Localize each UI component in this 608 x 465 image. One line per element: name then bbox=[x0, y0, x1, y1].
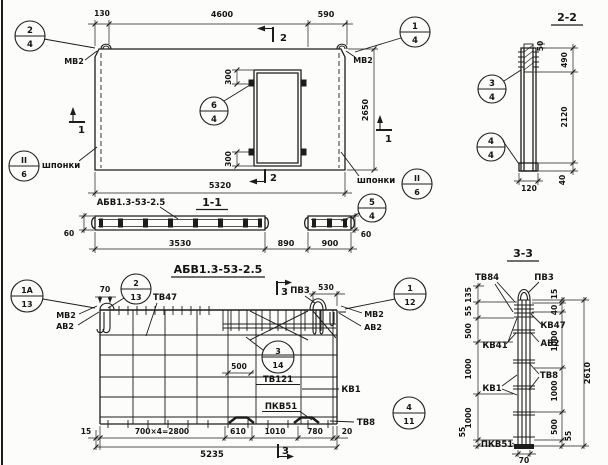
dim-70: 70 bbox=[100, 285, 110, 294]
section-marker-3-bottom: 3 bbox=[278, 444, 294, 459]
label-av2-right: АВ2 bbox=[364, 323, 382, 332]
section-marker-2-top: 2 bbox=[257, 26, 287, 44]
dim-60-left: 60 bbox=[64, 229, 74, 238]
section-1-1: 1-1 АБВ1.3-53-2.5 60 60 3530 890 900 bbox=[64, 194, 386, 253]
top-dim-lines bbox=[88, 20, 353, 47]
panel-mark-leader bbox=[160, 207, 178, 219]
callout-4-4: 4 4 bbox=[477, 133, 519, 164]
section-marker-1-left: 1 bbox=[69, 107, 85, 136]
dim-300-bottom: 300 bbox=[224, 151, 233, 167]
label-tv121: ТВ121 bbox=[263, 375, 293, 385]
right-label-leaders bbox=[338, 306, 362, 326]
callout-5-4: 5 4 bbox=[341, 194, 386, 222]
dim-70: 70 bbox=[519, 456, 529, 465]
section-3-3: 3-3 ТВ84 ПВ3 КВ47 АВ2 КВ41 КВ1 ТВ8 ПКВ51… bbox=[458, 247, 592, 465]
keys-callout-right: II 6 шпонки bbox=[341, 152, 432, 199]
dim-right-55: 55 bbox=[564, 431, 573, 441]
callout-sheet: 11 bbox=[403, 417, 415, 426]
pv3-loop bbox=[518, 290, 530, 301]
dim-70-arrow bbox=[98, 298, 102, 304]
dim-right-15: 15 bbox=[550, 289, 559, 299]
callout-2-4: 2 4 bbox=[15, 21, 95, 51]
callout-number: 3 bbox=[275, 347, 281, 356]
dim-590: 590 bbox=[318, 10, 335, 19]
callout-sheet: 4 bbox=[489, 93, 495, 103]
callout-number: 2 bbox=[133, 279, 139, 288]
dim-700x4: 700×4=2800 bbox=[135, 427, 189, 436]
bottom-plate bbox=[519, 163, 538, 171]
marker-label: 1 bbox=[385, 134, 392, 145]
label-pv3: ПВ3 bbox=[290, 286, 310, 296]
panel-plan-view: 130 4600 590 2650 5320 300 300 2 4 1 4 bbox=[9, 9, 432, 199]
dim-120: 120 bbox=[521, 184, 537, 193]
lifting-loop-right bbox=[337, 44, 347, 49]
callout-sheet: 4 bbox=[27, 40, 33, 50]
callout-number: 4 bbox=[488, 137, 494, 147]
label-av2-left: АВ2 bbox=[56, 322, 74, 331]
callout-sheet: 13 bbox=[21, 300, 32, 309]
section-marker-1-right: 1 bbox=[376, 115, 392, 145]
callout-number: 3 bbox=[489, 79, 495, 89]
opening-outline bbox=[254, 70, 301, 166]
callout-sheet: 4 bbox=[211, 115, 217, 125]
dim-70-arrow bbox=[108, 298, 112, 304]
scan-edge bbox=[1, 0, 3, 465]
callout-sheet: 6 bbox=[21, 170, 27, 179]
callout-sheet: 12 bbox=[404, 298, 415, 307]
callout-number: 1 bbox=[412, 22, 418, 32]
label-pkv51: ПКВ51 bbox=[481, 440, 513, 450]
mv2-right-leader bbox=[346, 51, 355, 57]
dim-left-500: 500 bbox=[464, 323, 473, 339]
dim-15: 15 bbox=[81, 427, 91, 436]
callout-number: 1 bbox=[407, 284, 413, 293]
panel-mark-label: АБВ1.3-53-2.5 bbox=[97, 198, 166, 208]
callout-sheet: 13 bbox=[130, 293, 141, 302]
callout-sheet: 4 bbox=[412, 36, 418, 46]
dim-1010: 1010 bbox=[265, 427, 286, 436]
label-mv2-right: МВ2 bbox=[364, 310, 384, 319]
dim-60-right: 60 bbox=[361, 230, 371, 239]
opening-fixing-plate bbox=[301, 149, 307, 156]
dim-900: 900 bbox=[322, 239, 339, 248]
dim-left-55-bottom: 55 bbox=[458, 427, 467, 437]
dim-530: 530 bbox=[318, 283, 334, 292]
tv47-leader bbox=[146, 303, 157, 336]
callout-4-11: 4 11 bbox=[393, 397, 425, 429]
dim-right-40: 40 bbox=[550, 305, 559, 315]
bottom-chain-ticks bbox=[94, 436, 340, 450]
callout-number: 5 bbox=[369, 198, 375, 208]
label-kv1: КВ1 bbox=[482, 384, 501, 394]
dim-780: 780 bbox=[307, 427, 323, 436]
callout-1a-13: 1А 13 bbox=[11, 280, 95, 312]
keys-callout-left: II 6 шпонки bbox=[9, 147, 97, 181]
left-label-leaders bbox=[78, 306, 99, 325]
dim-890: 890 bbox=[278, 239, 295, 248]
dim-left-1000-a: 1000 bbox=[464, 359, 473, 380]
dim-20: 20 bbox=[342, 427, 352, 436]
dim-2120: 2120 bbox=[560, 107, 569, 128]
length-dim-lines bbox=[89, 232, 357, 253]
bent-bar-left bbox=[229, 418, 254, 424]
drawing-sheet: 130 4600 590 2650 5320 300 300 2 4 1 4 bbox=[0, 0, 608, 465]
bottom-plate bbox=[514, 444, 534, 449]
label-tv8: ТВ8 bbox=[540, 371, 558, 381]
opening-fixing-plate bbox=[301, 80, 307, 87]
pv3-leader bbox=[305, 296, 315, 303]
dim-left-135: 135 bbox=[464, 287, 473, 303]
label-mv2-right: МВ2 bbox=[353, 56, 373, 65]
bar-walls bbox=[518, 300, 530, 444]
dim-300-top: 300 bbox=[224, 69, 233, 85]
section-2-2: 2-2 50 490 2120 40 120 3 4 4 4 bbox=[477, 11, 583, 193]
bent-bar-right bbox=[294, 418, 319, 424]
anchor-hatch bbox=[524, 45, 533, 70]
tv84-leaders bbox=[495, 282, 515, 312]
label-mv2-left: МВ2 bbox=[56, 311, 76, 320]
label-keys-left: шпонки bbox=[42, 161, 80, 171]
callout-1-4: 1 4 bbox=[355, 17, 430, 52]
dim-right-1000-a: 1000 bbox=[550, 331, 559, 352]
callout-3-4: 3 4 bbox=[478, 70, 521, 103]
callout-number: 2 bbox=[27, 26, 33, 36]
section-title: 3-3 bbox=[513, 247, 533, 260]
dim-5235: 5235 bbox=[200, 450, 224, 460]
label-pkv51: ПКВ51 bbox=[265, 402, 297, 412]
dim-610: 610 bbox=[230, 427, 246, 436]
tv8-leader bbox=[330, 421, 354, 422]
dim-490: 490 bbox=[560, 52, 569, 68]
dim-70-line bbox=[95, 296, 116, 303]
marker-label: 2 bbox=[280, 33, 287, 44]
callout-number: II bbox=[414, 174, 420, 183]
rebar-cross-ticks bbox=[513, 305, 535, 437]
dim-right-1000-b: 1000 bbox=[550, 381, 559, 402]
dim-right-500: 500 bbox=[550, 419, 559, 435]
marker-label: 2 bbox=[270, 173, 277, 184]
label-mv2-left: МВ2 bbox=[64, 57, 84, 66]
dim-5320: 5320 bbox=[209, 181, 232, 190]
marker-label: 3 bbox=[281, 287, 288, 298]
callout-sheet: 14 bbox=[272, 361, 284, 370]
section-title: 1-1 bbox=[202, 196, 222, 209]
callout-number: 1А bbox=[21, 286, 34, 295]
label-kv1: КВ1 bbox=[341, 385, 360, 395]
dim-50: 50 bbox=[536, 41, 545, 51]
section-marker-2-bottom: 2 bbox=[249, 169, 277, 184]
kv41-leaders bbox=[506, 318, 517, 344]
reinforcement-plan-view: АБВ1.3-53-2.5 1А 13 2 13 bbox=[11, 263, 426, 460]
av2-leader bbox=[530, 332, 539, 342]
dim-130: 130 bbox=[94, 9, 110, 18]
dim-3530: 3530 bbox=[169, 239, 192, 248]
pv3-leader bbox=[528, 282, 539, 293]
callout-number: II bbox=[21, 156, 27, 165]
label-kv41: КВ41 bbox=[482, 341, 507, 351]
view-title: АБВ1.3-53-2.5 bbox=[174, 263, 263, 276]
dim-2610: 2610 bbox=[583, 361, 592, 384]
dim-left-55-top: 55 bbox=[464, 306, 473, 316]
dim-left-1000-b: 1000 bbox=[464, 408, 473, 429]
section-title: 2-2 bbox=[557, 11, 577, 24]
dim-500: 500 bbox=[231, 362, 247, 371]
kv47-leader bbox=[531, 314, 541, 324]
label-keys-right: шпонки bbox=[357, 176, 395, 186]
pkv51-leader bbox=[262, 412, 312, 421]
callout-sheet: 4 bbox=[369, 212, 375, 222]
panel-outline bbox=[95, 49, 345, 170]
callout-sheet: 6 bbox=[414, 188, 420, 197]
callout-sheet: 4 bbox=[488, 151, 494, 161]
callout-number: 6 bbox=[211, 101, 217, 111]
callout-6-4: 6 4 bbox=[200, 85, 250, 125]
right-chain-lines bbox=[534, 44, 578, 175]
label-tv47: ТВ47 bbox=[153, 293, 177, 303]
label-tv84: ТВ84 bbox=[475, 273, 499, 283]
callout-number: 4 bbox=[406, 403, 412, 412]
marker-label: 3 bbox=[282, 446, 289, 457]
mesh-dense-top-bars bbox=[223, 310, 336, 331]
lifting-loop-left bbox=[101, 44, 111, 49]
marker-label: 1 bbox=[78, 125, 85, 136]
dim-4600: 4600 bbox=[211, 10, 234, 19]
label-pv3: ПВ3 bbox=[534, 273, 554, 283]
kv1-leaders bbox=[502, 375, 517, 395]
callout-2-13: 2 13 bbox=[108, 274, 151, 308]
dim-40: 40 bbox=[558, 175, 567, 185]
dim-2650: 2650 bbox=[361, 98, 370, 121]
label-tv8: ТВ8 bbox=[357, 418, 375, 428]
callout-1-12: 1 12 bbox=[345, 278, 426, 310]
